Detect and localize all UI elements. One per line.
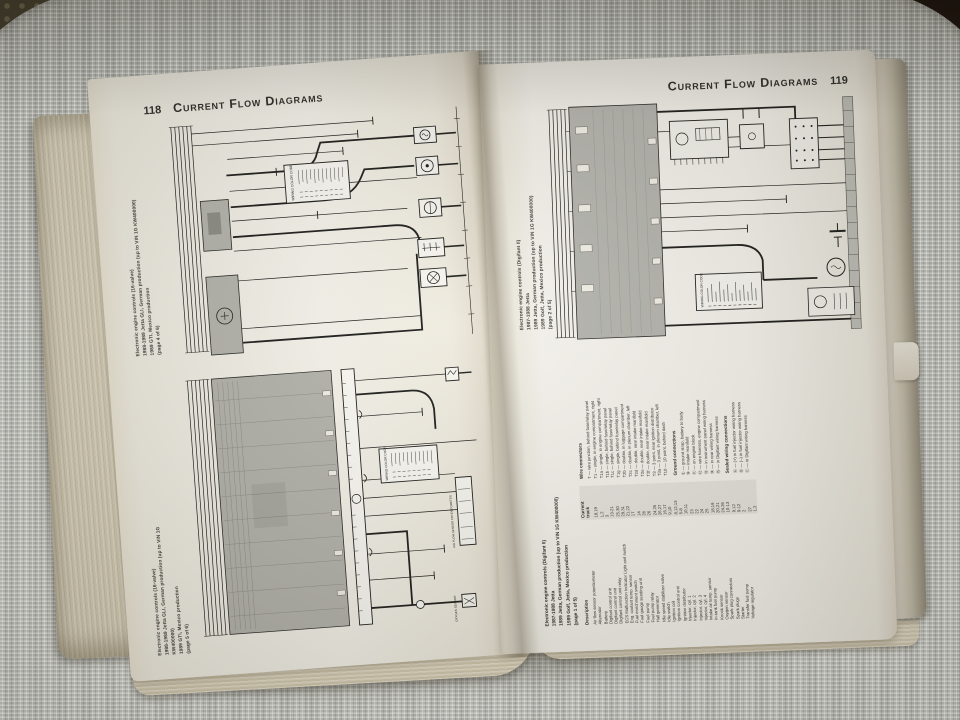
fuse-relay-panel [569,104,666,339]
current-track-header: Current track [579,488,591,518]
battery-and-alternator [805,223,854,317]
ignition-coil [739,124,764,149]
legend-wire-column: Wire connectors T — wire junction, behin… [574,344,756,479]
left-page-number: 118 [143,104,162,117]
wiring-color-code-box: WIRING COLOR CODE [695,271,762,311]
ground-connection-items: ① — ground strap, battery to body⑩ — int… [676,346,721,475]
left-page: 118 Current Flow Diagrams Electronic eng… [87,51,522,682]
left-bottom-diagram-caption: Electronic engine controls (16-valve) 19… [146,502,193,656]
wiring-color-code-box: WIRING COLOR CODE [379,443,439,483]
ignition-control-unit [669,119,729,165]
air-flow-sensor: AIR FLOW SENSOR POTENTIOMETER [447,476,476,548]
legend-item: 1,2 [751,481,757,511]
right-side-components [408,106,476,337]
oxygen-sensor-label: OXYGEN SENSOR [453,595,459,622]
wiring-color-code-box: WIRING COLOR CODE [284,160,351,204]
right-page-header: Current Flow Diagrams 119 [667,73,848,94]
legend-description-column: Description Air flow sensor potentiomete… [581,520,762,625]
legend-caption: Electronic engine controls (Digifant II)… [534,351,580,626]
photo-of-open-manual: 118 Current Flow Diagrams Electronic eng… [0,0,960,720]
left-top-diagram-caption: Electronic engine controls (16-valve) 19… [119,137,164,357]
top-right-component [445,366,472,381]
open-book: 118 Current Flow Diagrams Electronic eng… [15,0,928,707]
left-bottom-wiring-diagram: WIRING COLOR CODE AIR FLOW SENSOR POTENT… [179,350,498,645]
legend-descriptions: Air flow sensor potentiometerAlternatorB… [589,521,756,625]
legend-table: Description Air flow sensor potentiomete… [574,344,762,625]
right-page-number: 119 [830,75,848,88]
right-page: Current Flow Diagrams 119 Electronic eng… [479,50,897,655]
legend-rotated-content: Electronic engine controls (Digifant II)… [534,342,838,627]
page-marker-tab [893,342,919,381]
legend-track-column: Current track 18,191,2313-2125,3029,3121… [579,479,757,520]
relay-components [200,199,243,355]
wire-connector-items: T — wire junction, behind fuse/relay pan… [582,348,669,479]
sealed-connection-items: Ⓐ — (+) in fuel injector wiring harnessⒷ… [728,345,750,474]
left-top-wiring-diagram: WIRING COLOR CODE [160,98,477,359]
control-unit-block [211,370,349,634]
air-flow-sensor-label: AIR FLOW SENSOR POTENTIOMETER [448,495,456,548]
legend-section: Electronic engine controls (Digifant II)… [534,342,838,627]
right-top-wiring-diagram: WIRING COLOR CODE [542,90,863,344]
legend-tracks: 18,191,2313-2125,3029,3121,221714262624,… [593,481,758,517]
right-page-title: Current Flow Diagrams [667,74,818,94]
oxygen-sensor: OXYGEN SENSOR [453,593,478,622]
connector-block [789,118,819,169]
